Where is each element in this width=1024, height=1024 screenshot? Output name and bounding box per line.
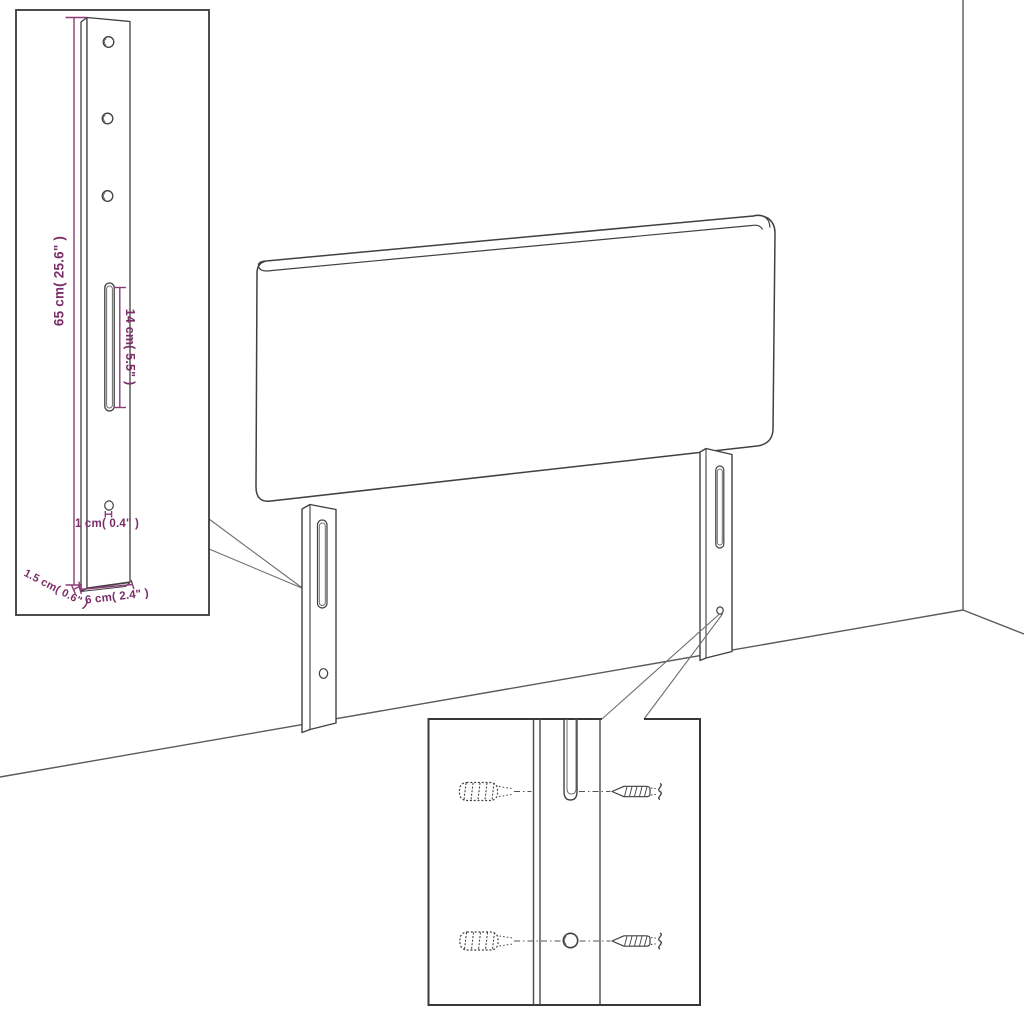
- headboard-panel: [256, 215, 775, 501]
- inset-leg-front-face: [87, 18, 130, 589]
- diagram-canvas: 65 cm( 25.6" ) 14 cm( 5.5" ) 1 cm( 0.4" …: [0, 0, 1024, 1024]
- mounting-detail-inset: [427, 719, 701, 1006]
- dimension-label-leg-height: 65 cm( 25.6" ): [52, 236, 67, 326]
- floor-line-right: [963, 610, 1024, 634]
- inset-leg-side-face: [81, 18, 87, 592]
- dimension-label-slot-length: 14 cm( 5.5" ): [123, 309, 137, 386]
- callout-lines-left-leg: [209, 519, 303, 589]
- headboard-left-leg: [302, 505, 336, 733]
- line-art: [0, 0, 1024, 1024]
- headboard-right-leg: [700, 449, 732, 661]
- headboard-outline: [256, 215, 775, 501]
- dimension-label-hole-diameter: 1 cm( 0.4" ): [75, 518, 139, 530]
